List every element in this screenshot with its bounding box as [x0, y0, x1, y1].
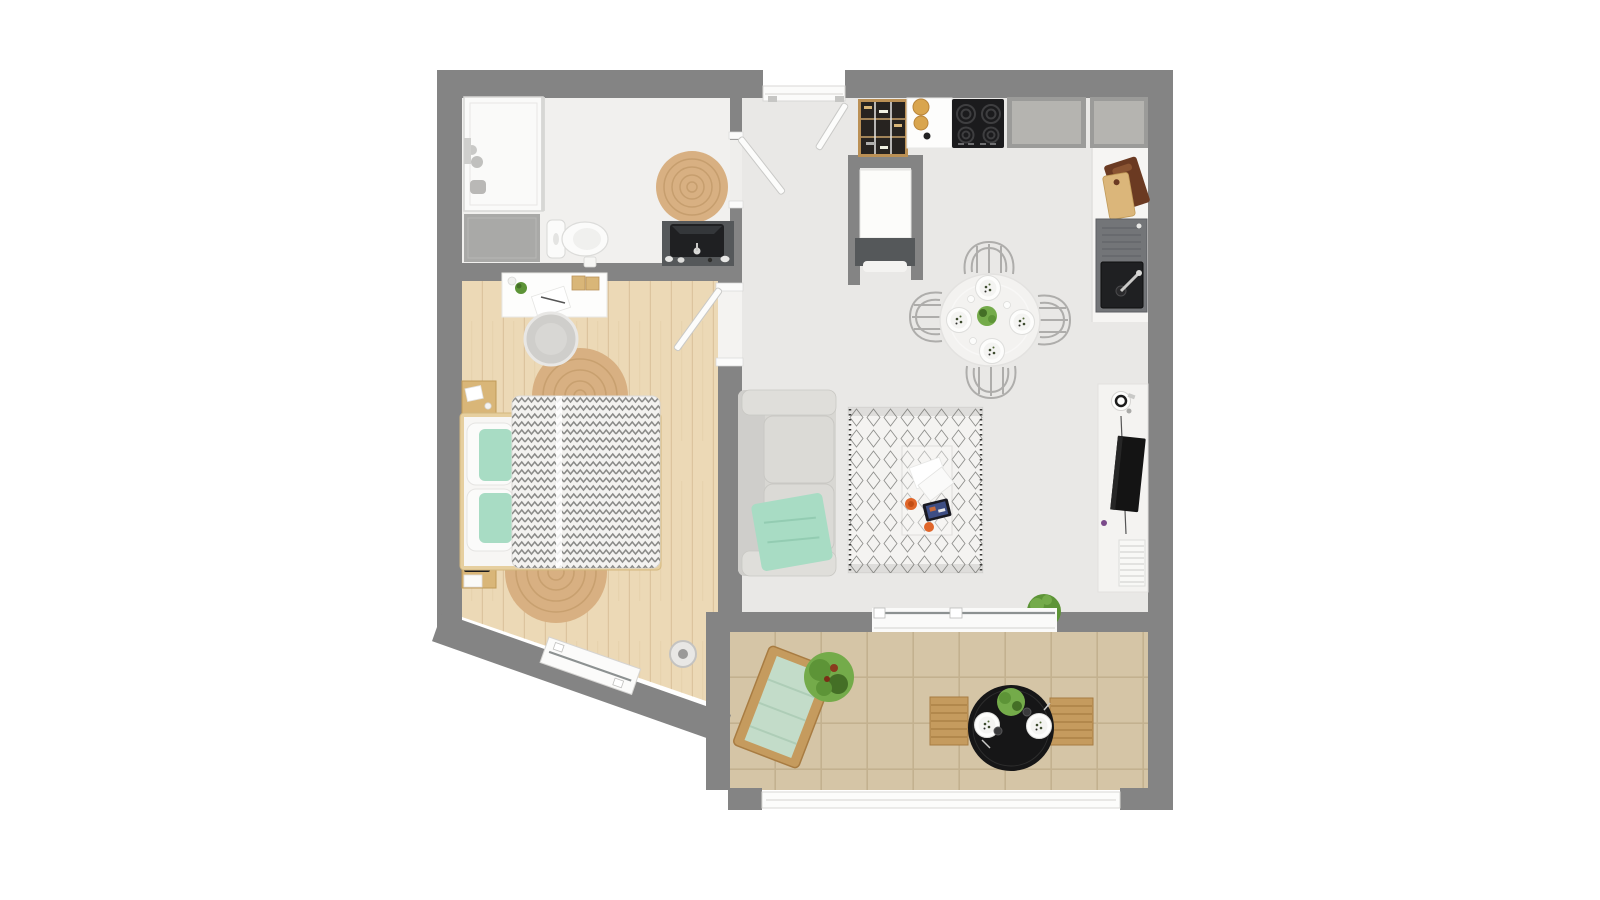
shower-column: [464, 138, 471, 164]
desk-organizer-1: [572, 276, 585, 290]
desk: [502, 273, 607, 318]
double-bed: [460, 396, 661, 570]
jute-rug-small: [656, 151, 728, 223]
balcony-post-left: [728, 788, 762, 810]
wall-top-right: [845, 70, 1173, 98]
bedroom-door-opening: [718, 290, 742, 362]
magazine-stack: [1119, 540, 1145, 586]
wall-balcony-west: [706, 612, 730, 790]
chevron-duvet: [512, 396, 660, 568]
shower-mat: [464, 214, 540, 262]
bench-right: [1050, 698, 1093, 745]
glass-partition: [541, 97, 545, 211]
door-jamb: [729, 201, 743, 208]
shower-drain: [470, 180, 486, 194]
apartment-floor-plan: [0, 0, 1600, 900]
floor-plan-page: [0, 0, 1600, 900]
table-centerpiece-plant: [977, 306, 997, 326]
vanity-sink: [662, 221, 734, 266]
wall-right: [1148, 70, 1173, 790]
place-setting-west: [947, 308, 972, 333]
place-setting-east: [1010, 310, 1035, 335]
floor-speaker: [670, 641, 696, 667]
shower-head-icon: [471, 156, 483, 168]
small-object: [1101, 520, 1107, 526]
wood-canister-1: [913, 99, 929, 115]
desk-chair: [525, 313, 577, 365]
sofa-seat-1: [764, 416, 834, 483]
outdoor-table-plant: [997, 688, 1025, 716]
wall-top-left: [437, 70, 763, 98]
bowl-icon-2: [924, 522, 934, 532]
open-shelf: [858, 99, 908, 157]
railing: [762, 792, 1120, 808]
sink-unit: [1096, 219, 1147, 312]
outdoor-table: [968, 685, 1054, 771]
wood-canister-2: [914, 116, 928, 130]
bench-left: [930, 697, 968, 745]
sliding-door: [872, 608, 1057, 632]
entry-threshold: [763, 86, 845, 102]
sliding-door-handle-1: [874, 608, 885, 618]
desk-plant-icon: [515, 282, 527, 294]
throw-blanket: [751, 492, 834, 571]
tall-cabinet: [855, 170, 915, 272]
sliding-door-handle-2: [950, 608, 962, 618]
door-jamb: [716, 358, 743, 366]
sofa: [738, 390, 836, 576]
wall-left: [437, 70, 462, 640]
balcony-post-right: [1120, 788, 1173, 810]
small-jar-icon: [924, 133, 931, 140]
sofa-arm-top: [742, 390, 836, 415]
cabinet-handle: [863, 261, 907, 272]
pillow-mint-bottom: [479, 493, 512, 543]
nightstand-top: [462, 381, 496, 418]
outdoor-plate-right: [1027, 714, 1052, 739]
jar-counter: [907, 98, 952, 148]
outdoor-plant: [804, 652, 854, 702]
tv-area: [1098, 384, 1148, 592]
place-setting-south: [980, 339, 1005, 364]
pillow-mint-top: [479, 429, 512, 481]
wall-living-south-right: [1057, 612, 1148, 632]
wall-living-south-left: [706, 612, 872, 632]
cooktop: [952, 99, 1004, 148]
place-setting-north: [976, 276, 1001, 301]
coffee-table: [902, 446, 954, 535]
counter-section-b: [1090, 97, 1148, 148]
counter-section-a: [1007, 97, 1086, 148]
desk-organizer-2: [586, 277, 599, 290]
bathroom-door-opening: [730, 140, 742, 203]
